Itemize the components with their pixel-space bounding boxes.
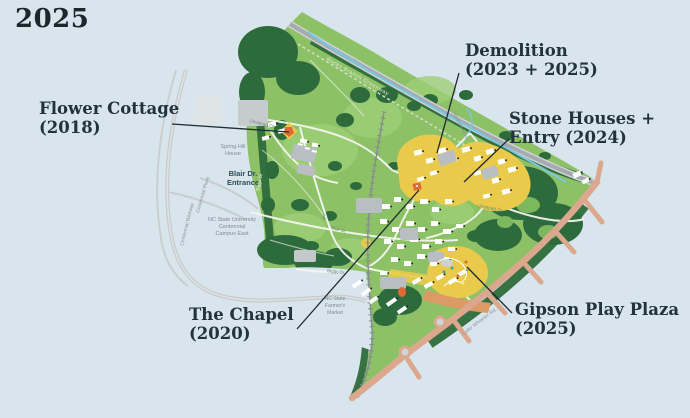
label-healing: Healing <box>409 313 424 318</box>
annotation-chapel: The Chapel (2020) <box>189 306 294 343</box>
dix-park-2025-map: Spring Hill House Blair Dr. Entrance NC … <box>0 0 690 418</box>
annotation-flower-line2: (2018) <box>39 119 179 138</box>
label-farmers-market: NC State <box>324 296 345 302</box>
annotation-flower-line1: Flower Cottage <box>39 100 179 119</box>
annotation-chapel-line1: The Chapel <box>189 306 294 325</box>
annotation-demolition-line1: Demolition <box>465 42 598 61</box>
annotation-gipson-line1: Gipson Play Plaza <box>515 301 679 320</box>
label-centennial-bikeway: Centennial Bikeway <box>179 202 196 247</box>
label-centennial-pkwy: Centennial Pkwy <box>195 176 211 214</box>
annotation-stone-line1: Stone Houses + <box>509 110 655 129</box>
label-ncsu-3: Campus East <box>215 231 248 237</box>
label-spring-hill: Spring Hill <box>220 144 245 150</box>
label-farmers-2: Farmer's <box>325 303 346 309</box>
label-farmers-3: Market <box>327 310 343 316</box>
annotation-chapel-line2: (2020) <box>189 325 294 344</box>
annotation-gipson-line2: (2025) <box>515 320 679 339</box>
label-ncsu-2: Centennial <box>219 224 245 230</box>
label-blair-entrance-2: Entrance <box>227 178 259 187</box>
label-spring-hill-2: House <box>225 151 241 157</box>
label-blair-entrance: Blair Dr. <box>229 169 258 178</box>
annotation-flower-cottage: Flower Cottage (2018) <box>39 100 179 137</box>
annotation-gipson: Gipson Play Plaza (2025) <box>515 301 679 338</box>
annotation-stone-houses: Stone Houses + Entry (2024) <box>509 110 655 147</box>
annotation-stone-line2: Entry (2024) <box>509 129 655 148</box>
year-label: 2025 <box>15 4 89 34</box>
annotation-demolition: Demolition (2023 + 2025) <box>465 42 598 79</box>
label-ncsu: NC State University <box>208 217 256 223</box>
annotation-demolition-line2: (2023 + 2025) <box>465 61 598 80</box>
label-healing-2: Transitions <box>406 319 426 324</box>
